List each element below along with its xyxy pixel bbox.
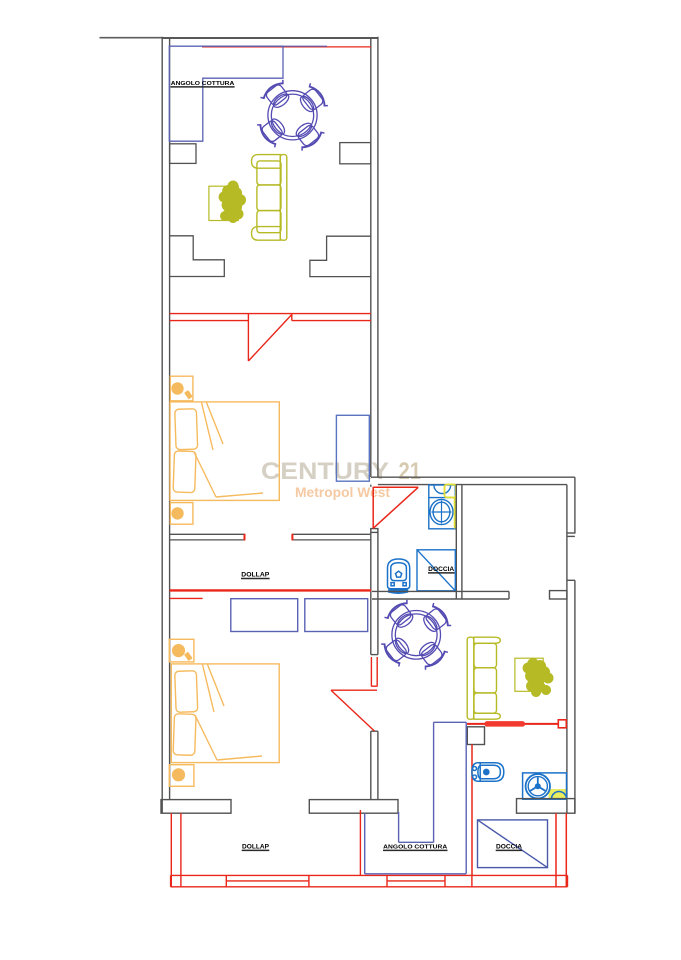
svg-text:DOCCIA: DOCCIA	[496, 844, 523, 851]
svg-text:ANGOLO COTTURA: ANGOLO COTTURA	[383, 845, 448, 851]
svg-text:21: 21	[399, 458, 422, 485]
svg-text:DOLLAP: DOLLAP	[242, 844, 269, 851]
svg-text:DOCCIA: DOCCIA	[428, 566, 455, 573]
svg-text:DOLLAP: DOLLAP	[241, 572, 269, 579]
svg-text:ANGOLO COTTURA: ANGOLO COTTURA	[171, 81, 235, 87]
